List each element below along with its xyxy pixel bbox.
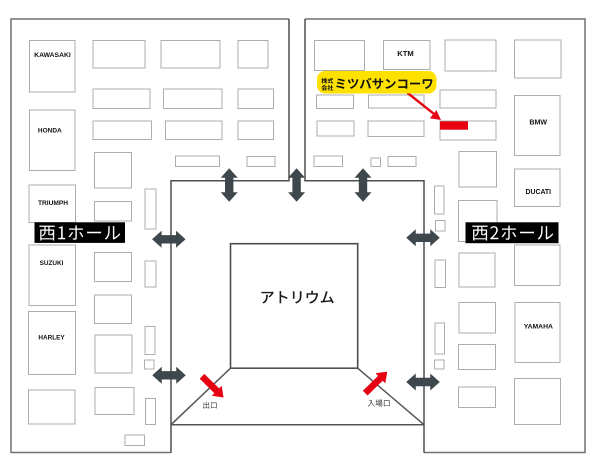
svg-text:HARLEY: HARLEY <box>38 334 65 341</box>
svg-text:YAMAHA: YAMAHA <box>524 324 553 331</box>
svg-text:SUZUKI: SUZUKI <box>40 260 64 267</box>
svg-text:BMW: BMW <box>529 118 547 126</box>
svg-text:KTM: KTM <box>397 49 413 58</box>
svg-text:DUCATI: DUCATI <box>526 189 552 196</box>
svg-text:HONDA: HONDA <box>38 128 62 135</box>
svg-text:KAWASAKI: KAWASAKI <box>34 52 71 59</box>
svg-text:TRIUMPH: TRIUMPH <box>38 200 68 207</box>
